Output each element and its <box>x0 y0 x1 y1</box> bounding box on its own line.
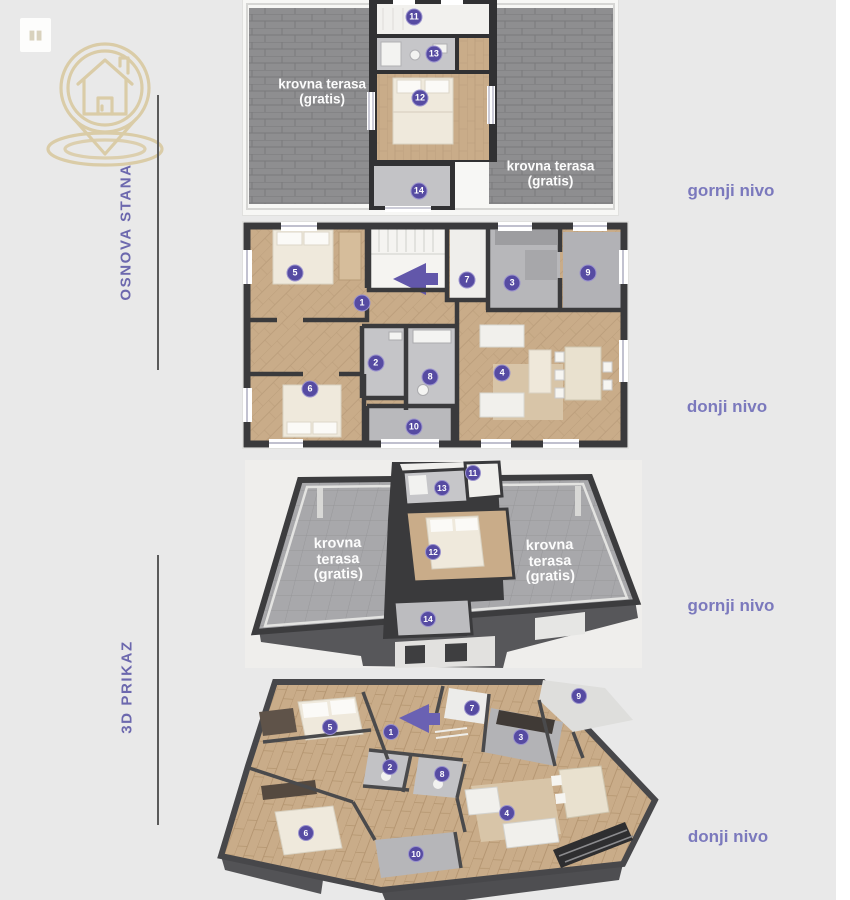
plan3d-lower-overlay: 51793284610 <box>203 672 686 900</box>
floorplan-2d-upper-level: 11131214krovna terasa(gratis)krovna tera… <box>243 0 618 215</box>
room-marker-2: 2 <box>382 759 398 775</box>
room-marker-1: 1 <box>353 294 370 311</box>
room-marker-6: 6 <box>301 381 318 398</box>
terrace-label: krovnaterasa(gratis) <box>525 538 575 586</box>
room-marker-2: 2 <box>367 355 384 372</box>
level-label-2d-upper: gornji nivo <box>671 181 791 201</box>
floorplan-sheet: ▮▮ OSNOVA STANA 3D PRIKAZ <box>0 0 850 900</box>
terrace-label: krovna terasa(gratis) <box>507 159 595 188</box>
room-marker-12: 12 <box>425 544 441 560</box>
section-divider-line-1 <box>157 95 159 370</box>
level-label-3d-upper: gornji nivo <box>671 596 791 616</box>
room-marker-5: 5 <box>322 719 338 735</box>
room-marker-14: 14 <box>420 611 436 627</box>
level-label-2d-lower: donji nivo <box>667 397 787 417</box>
terrace-label: krovna terasa(gratis) <box>278 77 366 106</box>
room-marker-10: 10 <box>405 418 422 435</box>
room-marker-13: 13 <box>425 45 442 62</box>
section-divider-line-2 <box>157 555 159 825</box>
level-label-3d-lower: donji nivo <box>668 827 788 847</box>
room-marker-11: 11 <box>465 465 481 481</box>
room-marker-5: 5 <box>286 265 303 282</box>
section-label-osnova-stana: OSNOVA STANA <box>118 163 135 300</box>
room-marker-14: 14 <box>410 183 427 200</box>
house-location-pin-logo <box>42 36 172 186</box>
room-marker-12: 12 <box>412 90 429 107</box>
plan2d-lower-overlay: 51739286410 <box>243 222 628 448</box>
floorplan-3d-upper-level: 11131214krovnaterasa(gratis)krovnaterasa… <box>245 460 642 668</box>
logo-house-door <box>98 98 112 114</box>
room-marker-9: 9 <box>571 688 587 704</box>
plan3d-upper-overlay: 11131214krovnaterasa(gratis)krovnaterasa… <box>245 460 642 668</box>
room-marker-3: 3 <box>504 275 521 292</box>
floorplan-2d-lower-level: 51739286410 <box>243 222 628 448</box>
room-marker-4: 4 <box>499 805 515 821</box>
terrace-label: krovnaterasa(gratis) <box>313 536 363 584</box>
logo-house-chimney <box>120 58 128 73</box>
room-marker-10: 10 <box>408 846 424 862</box>
room-marker-8: 8 <box>422 369 439 386</box>
section-label-3d-prikaz: 3D PRIKAZ <box>119 640 136 734</box>
room-marker-1: 1 <box>383 724 399 740</box>
room-marker-4: 4 <box>494 364 511 381</box>
logo-house-roof <box>78 60 132 84</box>
room-marker-11: 11 <box>406 8 423 25</box>
page-margin-strip <box>836 0 850 900</box>
room-marker-3: 3 <box>513 729 529 745</box>
room-marker-7: 7 <box>464 700 480 716</box>
room-marker-7: 7 <box>459 272 476 289</box>
floorplan-3d-lower-level: 51793284610 <box>203 672 686 900</box>
plan2d-upper-overlay: 11131214krovna terasa(gratis)krovna tera… <box>243 0 618 215</box>
room-marker-9: 9 <box>579 265 596 282</box>
room-marker-6: 6 <box>298 825 314 841</box>
room-marker-8: 8 <box>434 766 450 782</box>
room-marker-13: 13 <box>434 480 450 496</box>
